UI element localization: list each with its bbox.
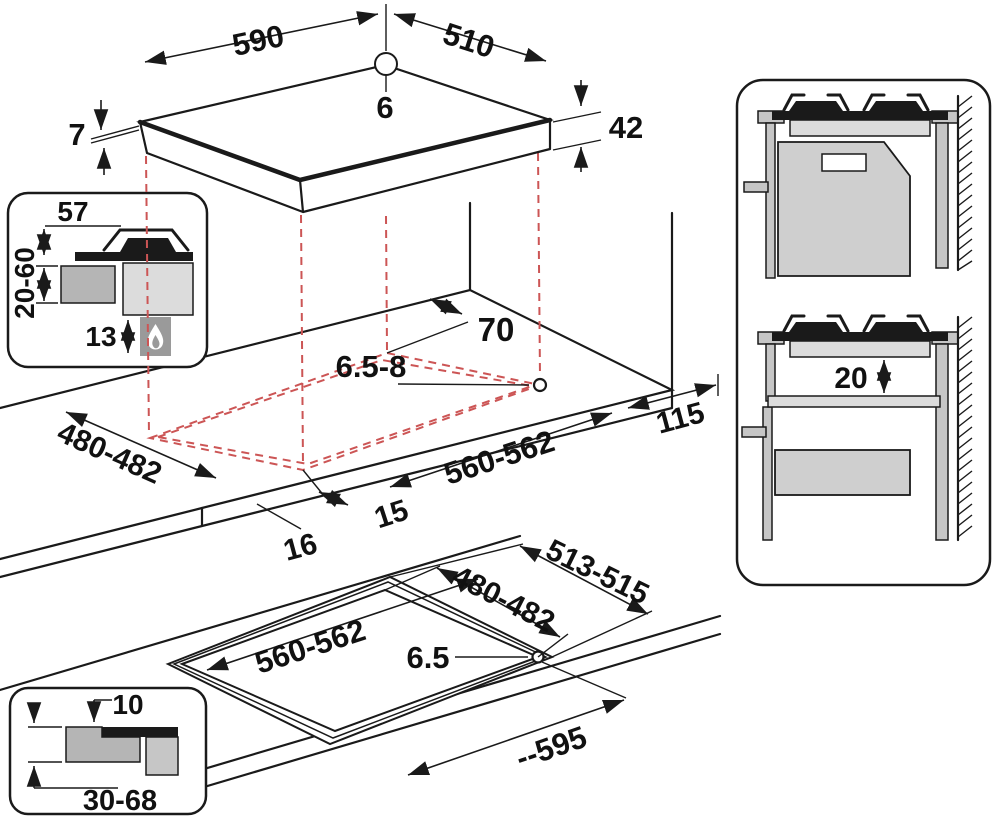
hob-glass-side [772,111,948,120]
worktop-side [790,120,930,136]
hob-glass-flush [102,727,178,737]
flush-worktop-thickness-label: 30-68 [83,785,157,817]
fixing-hole [534,379,546,391]
gas-inlet-hole [375,53,397,75]
flush-hole-diameter-label: 6.5 [406,640,449,675]
burner-icon [120,238,176,252]
hob-glass-side2 [772,332,948,341]
inlet-hole-label: 6 [376,90,393,125]
installation-diagram: 57 20-60 13 590 510 6 7 42 [0,0,1000,821]
installation-diagram-page: 57 20-60 13 590 510 6 7 42 [0,0,1000,821]
worktop-side2 [790,341,930,357]
worktop-section [61,266,115,303]
fixing-bracket [744,182,768,192]
grate-height-label: 57 [57,196,88,227]
hob-over-oven-view [744,95,972,278]
side-view-inset: 20 [737,80,990,585]
hole-diameter-label: 6.5-8 [336,349,407,384]
cabinet-panel-left-upper [766,344,775,401]
worktop-thickness-label: 20-60 [9,247,40,319]
bottom-clearance-label: 13 [85,321,116,352]
body-height-label: 42 [609,110,643,145]
step-depth-label: 10 [112,689,143,720]
hob-glass-section [75,252,193,261]
flush-detail-inset: 10 30-68 [10,688,206,817]
section-detail-inset: 57 20-60 13 [8,193,207,367]
cabinet-panel-left [766,123,775,278]
oven-vent [822,154,866,171]
cabinet-panel-right [936,123,948,268]
hob-body-section [123,263,193,315]
separator-shelf [768,396,940,407]
glass-thickness-label: 7 [68,117,85,152]
fixing-bracket2 [742,427,766,437]
shelf-gap-label: 20 [834,362,867,395]
cabinet-panel-right2 [936,344,948,540]
rear-clearance-label: 70 [478,311,515,348]
hob-body-flush [146,737,178,775]
gas-flame-icon [140,317,171,356]
drawer-front [775,450,910,495]
